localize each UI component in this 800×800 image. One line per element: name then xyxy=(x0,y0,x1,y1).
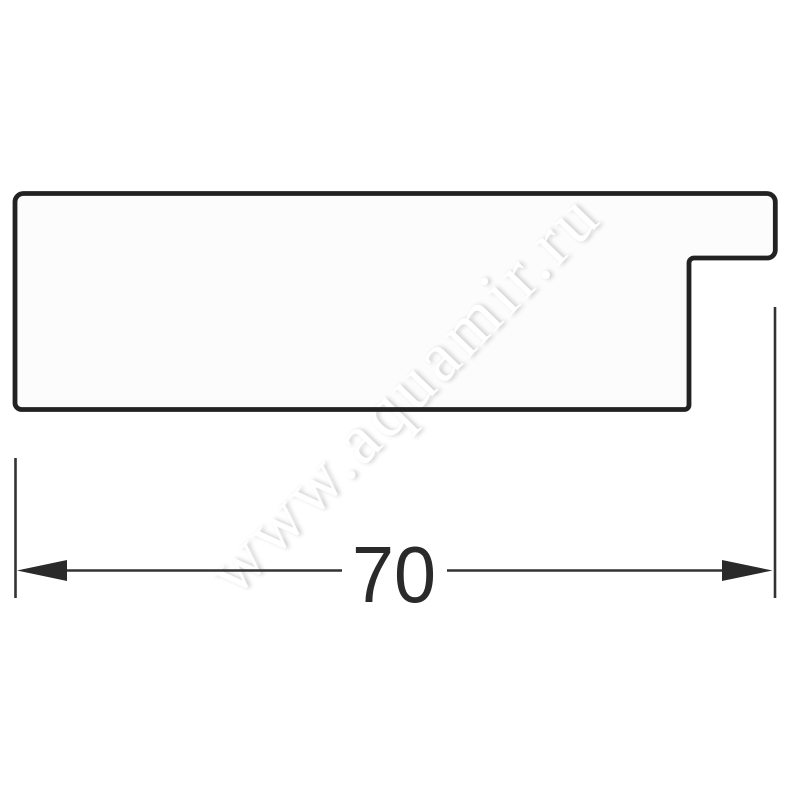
svg-text:70: 70 xyxy=(352,530,436,619)
